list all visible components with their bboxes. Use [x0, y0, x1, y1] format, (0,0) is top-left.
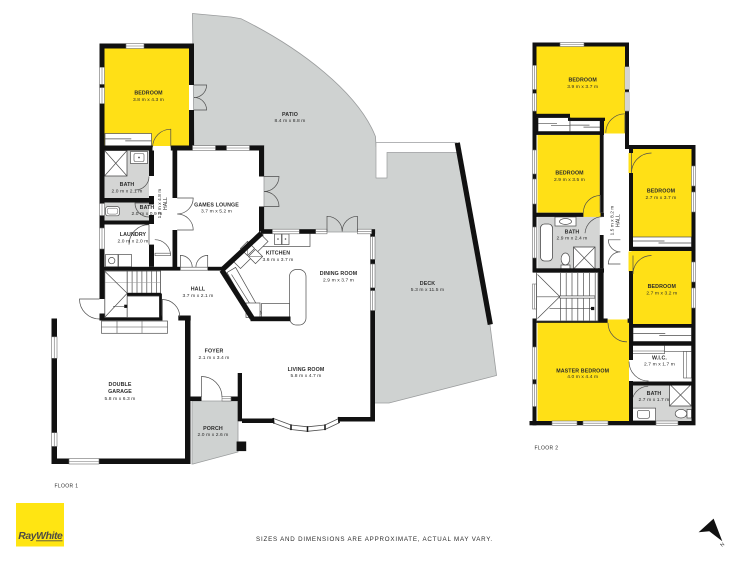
- svg-text:1.5 m x 8.2 m: 1.5 m x 8.2 m: [610, 206, 615, 236]
- svg-text:DOUBLE: DOUBLE: [109, 382, 132, 388]
- svg-text:4.0 m x 4.4 m: 4.0 m x 4.4 m: [567, 374, 598, 380]
- svg-text:2.7 m x 3.2 m: 2.7 m x 3.2 m: [646, 290, 677, 296]
- svg-text:3.6 m x 3.7 m: 3.6 m x 3.7 m: [263, 257, 294, 263]
- svg-text:HALL: HALL: [163, 197, 169, 210]
- svg-text:3.7 m x 5.2 m: 3.7 m x 5.2 m: [201, 209, 232, 215]
- svg-text:2.0 m x 2.0 m: 2.0 m x 2.0 m: [118, 239, 149, 245]
- svg-text:DECK: DECK: [420, 281, 435, 287]
- svg-text:MASTER BEDROOM: MASTER BEDROOM: [556, 368, 609, 374]
- svg-text:BATH: BATH: [120, 182, 135, 188]
- svg-text:2.7 m x 1.7 m: 2.7 m x 1.7 m: [639, 397, 670, 403]
- svg-text:LIVING ROOM: LIVING ROOM: [288, 367, 325, 373]
- svg-text:1.0 m x 4.8 m: 1.0 m x 4.8 m: [157, 189, 162, 219]
- svg-text:2.0 m x 2.6 m: 2.0 m x 2.6 m: [198, 432, 229, 438]
- svg-text:BATH: BATH: [647, 391, 662, 397]
- svg-text:5.8 m x 6.3 m: 5.8 m x 6.3 m: [105, 396, 136, 402]
- svg-text:SIZES AND DIMENSIONS ARE APPRO: SIZES AND DIMENSIONS ARE APPROXIMATE, AC…: [256, 536, 493, 543]
- svg-text:FLOOR 2: FLOOR 2: [535, 446, 559, 452]
- svg-text:W.I.C.: W.I.C.: [652, 356, 667, 362]
- svg-text:DINING ROOM: DINING ROOM: [320, 271, 358, 277]
- svg-text:BEDROOM: BEDROOM: [569, 78, 598, 84]
- svg-text:GARAGE: GARAGE: [108, 389, 132, 395]
- svg-text:LAUNDRY: LAUNDRY: [120, 232, 147, 238]
- svg-text:3.7 m x 2.1 m: 3.7 m x 2.1 m: [183, 293, 214, 299]
- svg-text:KITCHEN: KITCHEN: [266, 251, 290, 257]
- svg-text:BEDROOM: BEDROOM: [647, 189, 676, 195]
- svg-text:2.9 m x 2.4 m: 2.9 m x 2.4 m: [557, 236, 588, 242]
- svg-text:BEDROOM: BEDROOM: [648, 284, 677, 290]
- svg-text:BEDROOM: BEDROOM: [134, 91, 163, 97]
- svg-text:5.3 m x 11.5 m: 5.3 m x 11.5 m: [411, 287, 444, 293]
- svg-text:2.7 m x 3.7 m: 2.7 m x 3.7 m: [646, 195, 677, 201]
- svg-text:2.1 m x 3.4 m: 2.1 m x 3.4 m: [199, 355, 230, 361]
- svg-text:HALL: HALL: [616, 214, 622, 227]
- svg-text:PORCH: PORCH: [203, 426, 223, 432]
- svg-text:BEDROOM: BEDROOM: [555, 171, 584, 177]
- svg-text:HALL: HALL: [191, 287, 206, 293]
- svg-text:FLOOR 1: FLOOR 1: [55, 484, 79, 490]
- svg-text:2.9 m x 3.7 m: 2.9 m x 3.7 m: [323, 277, 354, 283]
- svg-text:3.8 m x 4.3 m: 3.8 m x 4.3 m: [133, 97, 164, 103]
- svg-text:PATIO: PATIO: [282, 112, 298, 118]
- svg-text:3.9 m x 3.7 m: 3.9 m x 3.7 m: [567, 84, 598, 90]
- svg-text:2.9 m x 3.5 m: 2.9 m x 3.5 m: [554, 177, 585, 183]
- svg-text:GAMES LOUNGE: GAMES LOUNGE: [194, 202, 239, 208]
- svg-text:2.0 m x 2.1 m: 2.0 m x 2.1 m: [112, 188, 143, 194]
- svg-text:5.8 m x 4.7 m: 5.8 m x 4.7 m: [291, 373, 322, 379]
- svg-text:BATH: BATH: [140, 205, 155, 211]
- svg-text:FOYER: FOYER: [205, 349, 224, 355]
- svg-text:8.4 m x 8.8 m: 8.4 m x 8.8 m: [275, 118, 306, 124]
- svg-text:BATH: BATH: [565, 230, 580, 236]
- svg-text:N: N: [719, 541, 726, 548]
- svg-text:2.7 m x 1.7 m: 2.7 m x 1.7 m: [644, 361, 675, 367]
